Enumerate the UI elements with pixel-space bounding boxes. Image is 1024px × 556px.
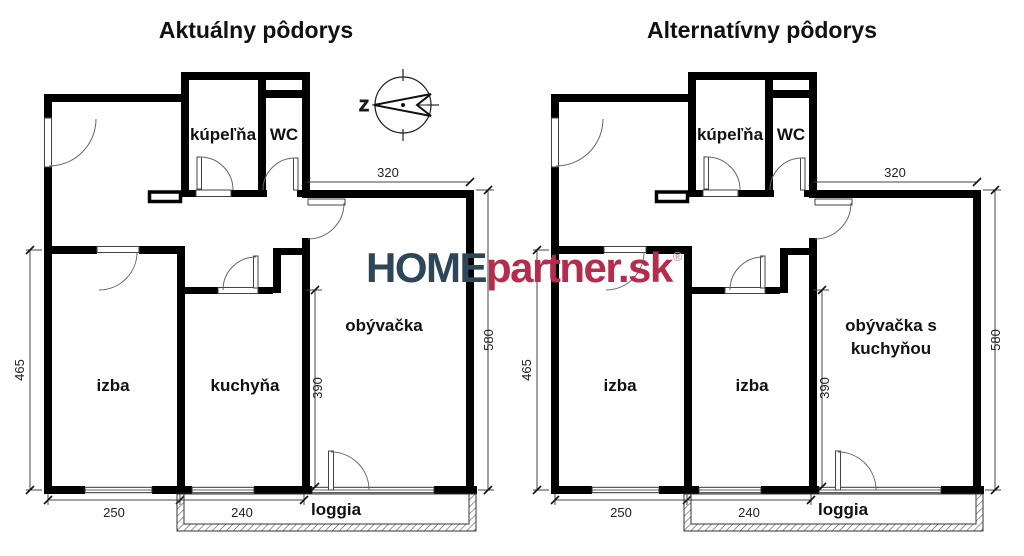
logo: HOMEpartner.sk® [366, 247, 681, 289]
label-bathroom-right: kúpeľňa [697, 125, 764, 144]
logo-home: HOME [366, 247, 486, 289]
dim-465-left: 465 [12, 359, 27, 381]
label-living-left: obývačka [345, 316, 423, 335]
label-room-right: izba [603, 376, 637, 395]
dim-250-left: 250 [103, 505, 125, 520]
label-living2-right: kuchyňou [851, 339, 931, 358]
label-loggia-right: loggia [818, 500, 869, 519]
plan-walls-right [533, 72, 1001, 531]
dim-580-left: 580 [481, 329, 496, 351]
label-kitchen-left: kuchyňa [211, 376, 281, 395]
plan-walls-left [26, 72, 494, 531]
dim-320-left: 320 [377, 165, 399, 180]
registered-mark: ® [673, 250, 683, 263]
dim-240-right: 240 [738, 505, 760, 520]
label-wc-left: WC [270, 125, 298, 144]
dim-240-left: 240 [231, 505, 253, 520]
label-living-right: obývačka s [845, 316, 937, 335]
dim-580-right: 580 [988, 329, 1003, 351]
dim-465-right: 465 [519, 359, 534, 381]
label-room-left: izba [96, 376, 130, 395]
dim-320-right: 320 [884, 165, 906, 180]
label-wc-right: WC [777, 125, 805, 144]
compass-icon: Z [359, 69, 439, 141]
dim-390-left: 390 [310, 377, 325, 399]
compass-west-label: Z [359, 98, 369, 115]
title-right: Alternatívny pôdorys [647, 17, 877, 43]
logo-partner: partner.sk [486, 247, 672, 289]
label-loggia-left: loggia [311, 500, 362, 519]
floorplan-page: Z Aktuálny pôdorys Alternatívny pôdorys … [0, 0, 1024, 556]
label-room2-right: izba [735, 376, 769, 395]
dim-250-right: 250 [610, 505, 632, 520]
label-bathroom-left: kúpeľňa [190, 125, 257, 144]
title-left: Aktuálny pôdorys [159, 17, 353, 43]
dim-390-right: 390 [817, 377, 832, 399]
